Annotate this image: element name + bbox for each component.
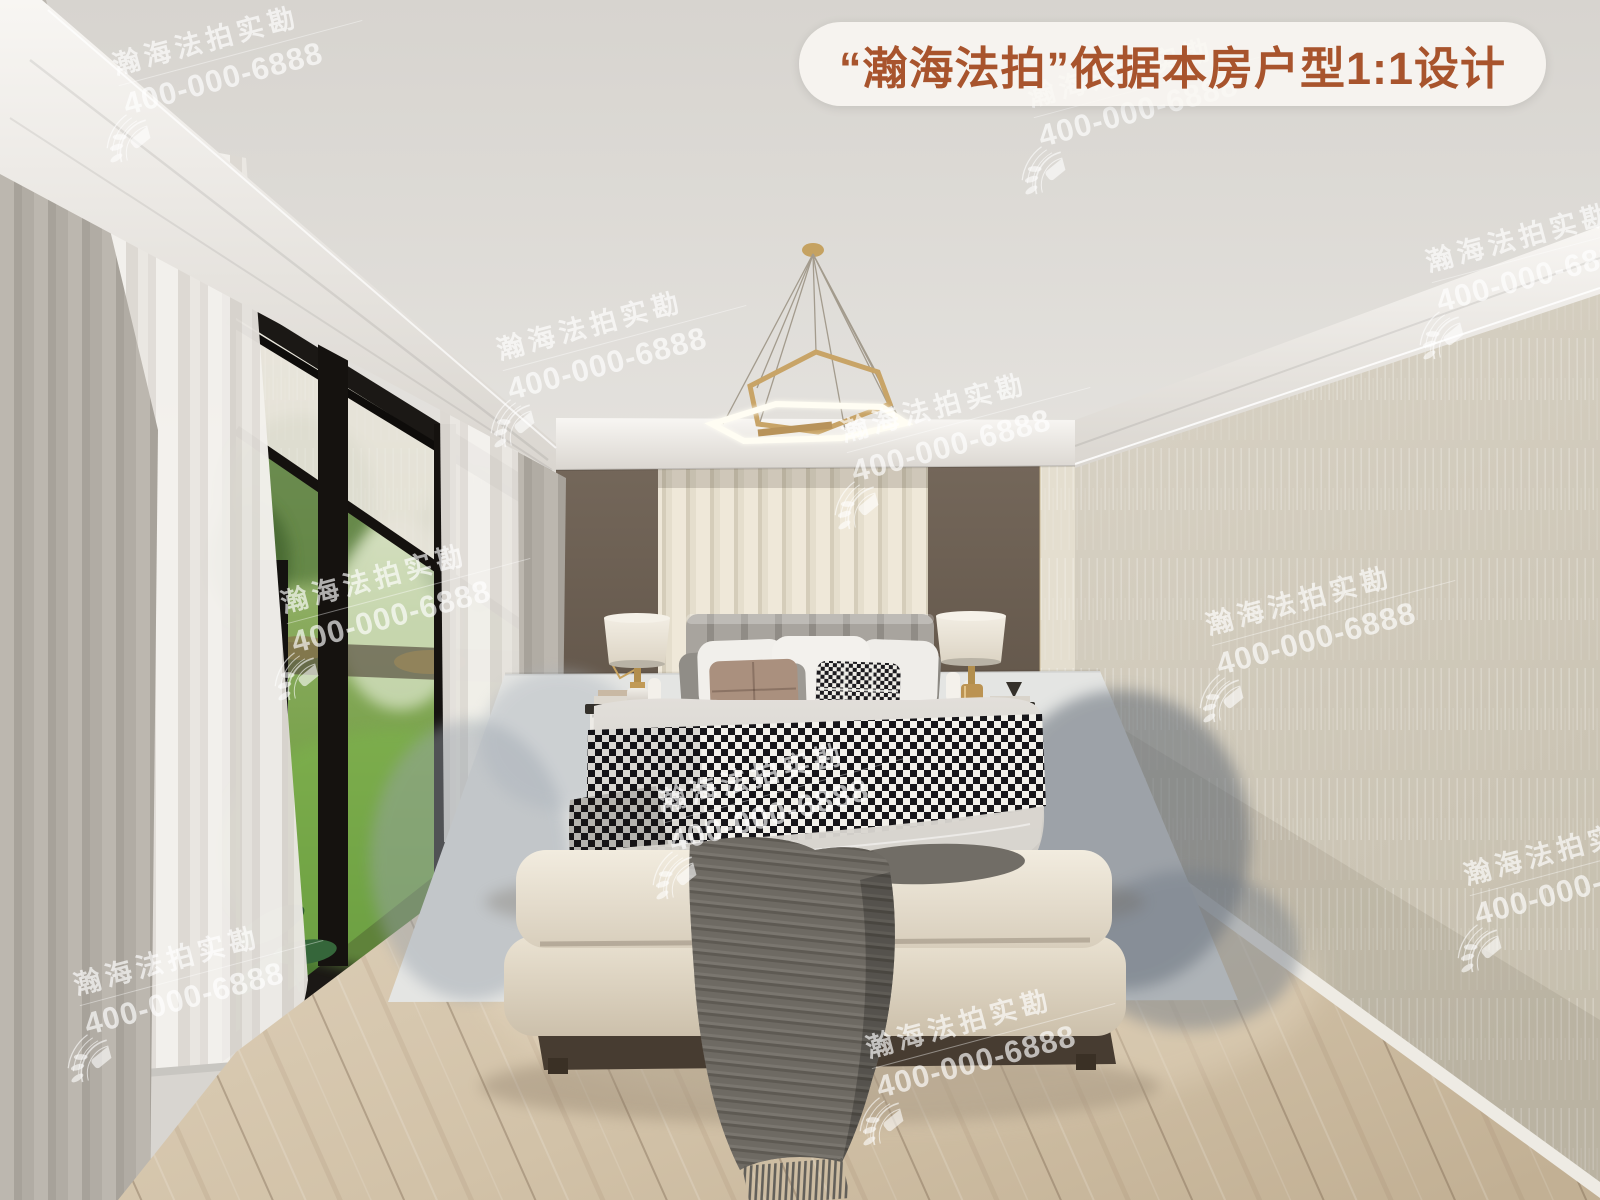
vase	[946, 672, 960, 702]
lamp-shade	[936, 616, 1006, 662]
room-render	[0, 0, 1600, 1200]
bedroom-render-photo: 瀚海法拍实勘400-000-6888 瀚海法拍实勘400-000-6888 瀚海…	[0, 0, 1600, 1200]
lamp-shade	[604, 618, 670, 664]
window-mullion	[318, 336, 348, 966]
design-claim-text: “瀚海法拍”依据本房户型1:1设计	[839, 32, 1506, 97]
design-claim-banner: “瀚海法拍”依据本房户型1:1设计	[799, 22, 1546, 106]
